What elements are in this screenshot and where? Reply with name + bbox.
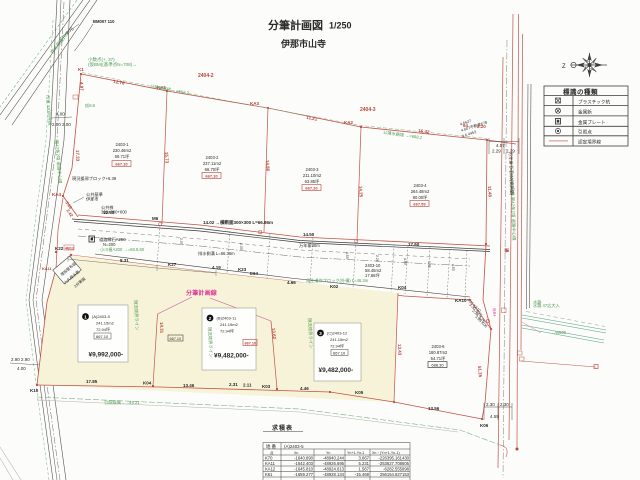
svg-text:54.71坪: 54.71坪 (431, 355, 446, 362)
svg-text:4.46: 4.46 (300, 386, 309, 391)
svg-text:13.62: 13.62 (271, 328, 277, 340)
svg-text:-48940.244: -48940.244 (323, 456, 345, 461)
svg-text:256154.627153: 256154.627153 (380, 472, 410, 477)
svg-text:水路 47広大入: 水路 47広大入 (533, 302, 561, 309)
svg-text:-48924.613: -48924.613 (323, 467, 345, 472)
svg-text:(C)2403-12: (C)2403-12 (327, 331, 348, 336)
svg-text:K61: K61 (265, 472, 273, 477)
svg-text:2.26: 2.26 (375, 255, 379, 262)
svg-text:K27: K27 (168, 262, 177, 267)
svg-text:¥9,992,000-: ¥9,992,000- (89, 352, 124, 359)
svg-text:小川植A200 →=66.8.60: 小川植A200 →=66.8.60 (100, 246, 145, 253)
svg-text:標識の種類: 標識の種類 (563, 87, 598, 96)
svg-text:4.50: 4.50 (345, 252, 349, 259)
svg-text:-48928.134: -48928.134 (323, 472, 345, 477)
svg-text:69.71坪: 69.71坪 (115, 153, 130, 160)
svg-text:241.15m2: 241.15m2 (330, 337, 349, 342)
svg-text:仮B4: 仮B4 (492, 308, 497, 317)
svg-text:K04: K04 (398, 285, 407, 290)
svg-text:現況援邪ブロック+6.39: 現況援邪ブロック+6.39 (72, 175, 117, 182)
svg-text:K10: K10 (30, 388, 39, 393)
svg-text:Yn+1-Yn-1: Yn+1-Yn-1 (347, 451, 364, 455)
svg-text:180.87m2: 180.87m2 (429, 350, 448, 355)
svg-text:K23: K23 (238, 267, 247, 272)
svg-text:1/250: 1/250 (329, 21, 352, 31)
svg-text:211.10m2: 211.10m2 (303, 173, 322, 178)
svg-text:4.66: 4.66 (287, 280, 296, 285)
svg-text:KA11: KA11 (265, 461, 276, 466)
svg-text:2404-2: 2404-2 (198, 73, 214, 79)
svg-text:4.00: 4.00 (56, 112, 65, 117)
svg-text:2.11: 2.11 (243, 383, 252, 388)
svg-text:4.59: 4.59 (490, 414, 499, 419)
svg-text:667.10: 667.10 (205, 173, 218, 178)
svg-text:4.57: 4.57 (496, 143, 505, 148)
svg-text:KA11: KA11 (42, 267, 52, 271)
svg-text:伊那市: 伊那市 (86, 196, 99, 203)
svg-text:237.11m2: 237.11m2 (203, 161, 222, 166)
svg-text:引照線偶→→48.21: 引照線偶→→48.21 (104, 399, 140, 406)
svg-text:地 番: 地 番 (266, 443, 277, 450)
svg-text:667.10: 667.10 (115, 161, 128, 166)
svg-text:-6282.555898: -6282.555898 (383, 467, 410, 472)
svg-text:¥9,482,000-: ¥9,482,000- (214, 353, 249, 360)
svg-text:8.31: 8.31 (120, 258, 129, 263)
svg-text:1: 1 (84, 315, 87, 321)
svg-text:66.70坪: 66.70坪 (205, 166, 220, 173)
svg-text:667.10: 667.10 (245, 341, 257, 345)
svg-text:15.73: 15.73 (164, 152, 170, 164)
svg-text:14.50: 14.50 (303, 232, 315, 237)
svg-text:1.567: 1.567 (359, 467, 370, 472)
svg-text:230.46m2: 230.46m2 (113, 148, 132, 153)
svg-text:求積表: 求積表 (272, 424, 293, 432)
svg-text:KA10: KA10 (455, 298, 467, 303)
svg-text:13.43: 13.43 (397, 344, 402, 356)
svg-text:(仮BM)(基準点N=708)→: (仮BM)(基準点N=708)→ (88, 61, 137, 68)
svg-text:4.19: 4.19 (212, 265, 221, 270)
svg-text:80.00坪: 80.00坪 (413, 194, 428, 201)
svg-text:認定境界線: 認定境界線 (578, 138, 601, 145)
svg-text:264.48m2: 264.48m2 (411, 189, 430, 194)
svg-text:KA4: KA4 (52, 192, 61, 197)
svg-text:63.85坪: 63.85坪 (305, 178, 320, 185)
svg-text:688.30: 688.30 (431, 362, 444, 367)
svg-text:分筆計画線: 分筆計画線 (186, 289, 217, 297)
svg-text:72.94坪: 72.94坪 (330, 343, 344, 349)
svg-text:667.10: 667.10 (333, 350, 346, 355)
svg-text:金属鋲: 金属鋲 (578, 108, 592, 115)
svg-text:667.10: 667.10 (305, 185, 318, 190)
svg-text:K02: K02 (330, 284, 339, 289)
svg-text:K05: K05 (355, 390, 364, 395)
svg-text:2.30: 2.30 (486, 402, 495, 407)
svg-text:72.94坪: 72.94坪 (96, 326, 110, 332)
svg-text:14.02 →横断面300×300 L=66.86m: 14.02 →横断面300×300 L=66.86m (203, 219, 273, 226)
svg-text:2403-4: 2403-4 (413, 183, 427, 188)
svg-text:72.94坪: 72.94坪 (220, 328, 234, 334)
svg-text:金属プレート: 金属プレート (578, 119, 606, 126)
svg-text:17.60: 17.60 (408, 242, 420, 247)
svg-text:¥9,482,000-: ¥9,482,000- (319, 367, 354, 374)
svg-text:引照点: 引照点 (578, 128, 592, 135)
svg-text:BM007 110: BM007 110 (93, 19, 115, 24)
svg-text:2.00: 2.00 (179, 238, 183, 245)
svg-text:2.00 2.00: 2.00 2.00 (52, 122, 71, 127)
svg-text:241.15m2: 241.15m2 (220, 322, 239, 327)
svg-text:伊那市山寺: 伊那市山寺 (280, 38, 326, 49)
svg-text:13.56: 13.56 (428, 406, 440, 411)
svg-text:K1: K1 (78, 67, 84, 72)
svg-text:4B12: 4B12 (65, 246, 74, 250)
svg-text:4.50: 4.50 (403, 258, 407, 265)
svg-text:Z: Z (562, 64, 566, 70)
svg-text:(A)2403-5: (A)2403-5 (92, 314, 111, 319)
svg-text:-1659.277: -1659.277 (294, 472, 314, 477)
svg-text:(A)2403-5: (A)2403-5 (284, 444, 304, 449)
svg-text:2404-3: 2404-3 (360, 107, 376, 113)
svg-text:14.86: 14.86 (265, 160, 271, 172)
svg-text:Xn・(Yn+1-Yn-1): Xn・(Yn+1-Yn-1) (372, 451, 400, 455)
svg-text:14.25: 14.25 (358, 186, 364, 198)
svg-text:17.85: 17.85 (86, 379, 98, 384)
svg-text:2403-3: 2403-3 (305, 167, 319, 172)
svg-text:17.33: 17.33 (75, 150, 80, 162)
svg-text:-226395.161430: -226395.161430 (378, 456, 409, 461)
svg-text:241.15m2: 241.15m2 (96, 321, 115, 326)
svg-text:分筆計画図: 分筆計画図 (268, 18, 323, 32)
svg-text:K70: K70 (265, 456, 273, 461)
svg-text:相生道岸ブロック(外構) L=46.3m: 相生道岸ブロック(外構) L=46.3m (306, 277, 369, 284)
svg-text:2.90 2.90: 2.90 2.90 (11, 357, 30, 362)
svg-text:→W600: →W600 (551, 330, 567, 335)
svg-text:2.30: 2.30 (500, 402, 509, 407)
svg-text:排水側溝 L=66.36m: 排水側溝 L=66.36m (198, 250, 235, 257)
svg-text:2.31: 2.31 (229, 382, 238, 387)
svg-text:667.10: 667.10 (96, 334, 109, 339)
svg-text:プラスチック杭: プラスチック杭 (578, 98, 610, 105)
svg-text:2403-2: 2403-2 (205, 155, 219, 160)
svg-text:2.29: 2.29 (492, 149, 501, 154)
svg-text:2.29: 2.29 (506, 149, 515, 154)
svg-text:-253627.708605: -253627.708605 (378, 461, 409, 466)
svg-text:-15.468: -15.468 (355, 472, 370, 477)
svg-text:K03: K03 (262, 384, 271, 389)
svg-text:点: 点 (270, 450, 274, 455)
svg-text:(B)2403-11: (B)2403-11 (217, 316, 237, 321)
svg-text:Xn: Xn (294, 451, 298, 455)
svg-text:667.10: 667.10 (170, 337, 182, 341)
svg-text:12.90: 12.90 (103, 210, 115, 215)
svg-text:2: 2 (209, 316, 212, 322)
svg-text:Yn: Yn (326, 451, 330, 455)
svg-text:13.46: 13.46 (183, 383, 195, 388)
svg-text:E64: E64 (250, 271, 259, 276)
svg-text:K04: K04 (143, 381, 152, 386)
svg-text:2.00: 2.00 (239, 243, 243, 250)
svg-text:2403-1: 2403-1 (115, 142, 129, 147)
svg-text:K22: K22 (55, 246, 64, 251)
svg-text:4.97: 4.97 (79, 82, 84, 91)
svg-text:3: 3 (319, 331, 322, 337)
svg-text:51.35: 51.35 (477, 366, 483, 378)
svg-text:4.00: 4.00 (17, 366, 26, 371)
svg-text:K06: K06 (480, 423, 489, 428)
svg-text:1.95: 1.95 (427, 261, 431, 268)
svg-text:-48926.695: -48926.695 (323, 461, 345, 466)
svg-text:-1645.810: -1645.810 (294, 467, 314, 472)
svg-text:M6: M6 (152, 216, 159, 221)
svg-text:KA3: KA3 (250, 101, 259, 106)
svg-text:14.31: 14.31 (159, 322, 164, 334)
svg-text:5.231: 5.231 (359, 461, 370, 466)
svg-text:-1640.890: -1640.890 (294, 456, 314, 461)
svg-text:3.667: 3.667 (359, 456, 370, 461)
svg-text:KA2: KA2 (344, 120, 353, 125)
svg-text:KA12: KA12 (265, 467, 276, 472)
svg-text:-1642.403: -1642.403 (294, 461, 314, 466)
svg-text:仮8.6: 仮8.6 (85, 102, 96, 109)
svg-text:11.48: 11.48 (487, 186, 493, 198)
svg-text:667.59: 667.59 (413, 201, 426, 206)
svg-text:2403-6: 2403-6 (431, 344, 445, 349)
svg-text:万年塀30m: 万年塀30m (299, 242, 320, 249)
svg-text:4.50: 4.50 (451, 264, 455, 271)
